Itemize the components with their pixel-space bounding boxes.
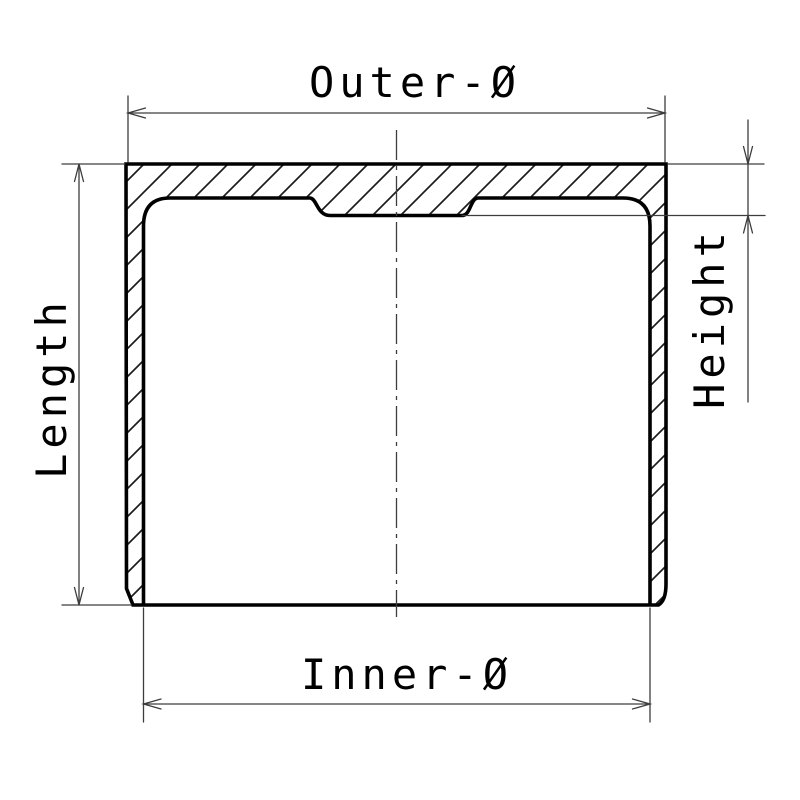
length-label: Length [27, 297, 76, 479]
height-label: Height [685, 227, 734, 409]
technical-drawing-page: Outer-Ø Inner-Ø Length Height [0, 0, 800, 800]
inner-diameter-label: Inner-Ø [301, 650, 513, 699]
technical-drawing: Outer-Ø Inner-Ø Length Height [0, 0, 800, 800]
outer-diameter-label: Outer-Ø [309, 58, 521, 107]
